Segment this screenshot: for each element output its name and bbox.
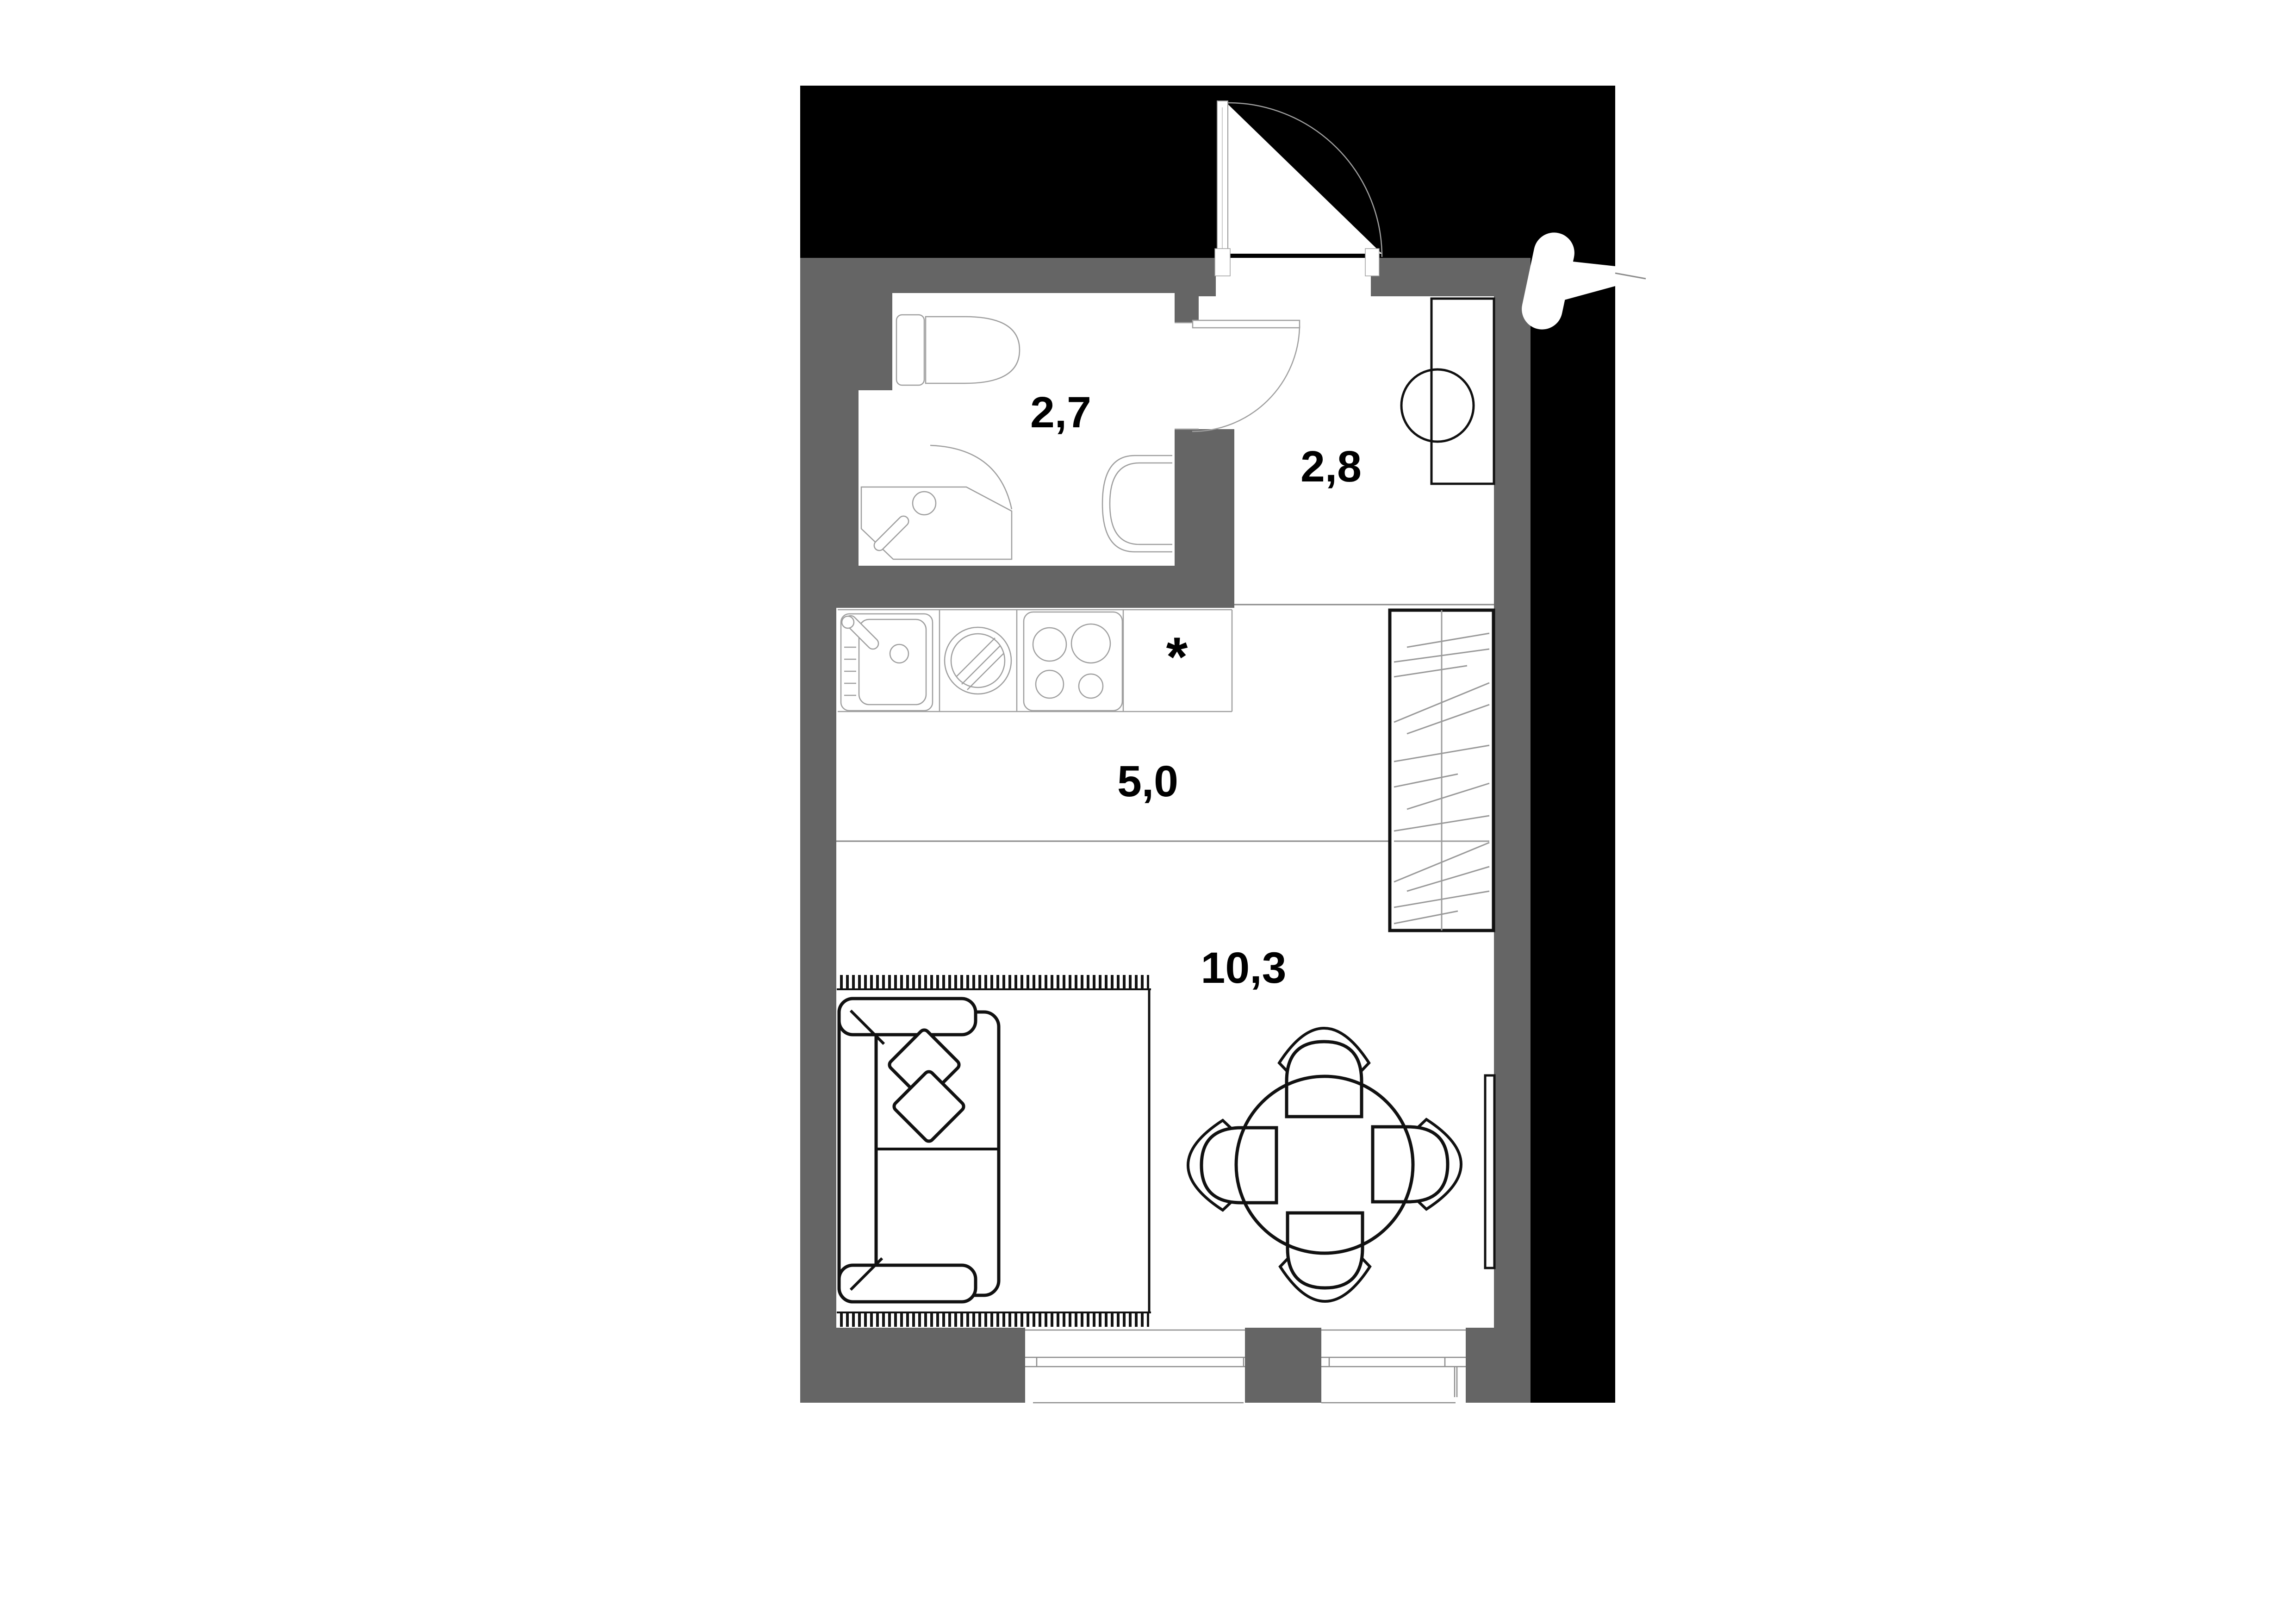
hallway-area-label: 2,8 <box>1300 442 1362 491</box>
toilet <box>896 315 1020 385</box>
entrance-door-jamb-right <box>1365 249 1379 276</box>
toilet-tank <box>896 315 924 385</box>
sink-faucet-knob <box>842 616 854 628</box>
kitchen-star-annotation: * <box>1166 626 1188 688</box>
window-2-opening <box>1321 1328 1466 1403</box>
kitchen-area-label: 5,0 <box>1117 757 1178 806</box>
entrance-door-jamb-left <box>1215 249 1230 276</box>
bathroom-area-label: 2,7 <box>1030 388 1091 437</box>
bathroom-doorway-cut <box>1175 323 1199 429</box>
floor-plan-canvas: 2,7 2,8 5,0 10,3 * <box>0 0 2296 1624</box>
sofa-arm-bottom <box>839 1265 976 1302</box>
tv <box>1485 1075 1494 1268</box>
wardrobe <box>1390 610 1493 931</box>
floor-plan-page: 2,7 2,8 5,0 10,3 * <box>0 0 2296 1624</box>
bathroom-door-leaf <box>1193 320 1300 328</box>
window-1-opening <box>1025 1328 1245 1403</box>
living-area-label: 10,3 <box>1201 943 1287 993</box>
sofa-arm-top <box>839 999 976 1035</box>
entrance-doorway-cut <box>1216 258 1371 296</box>
sofa <box>839 999 999 1302</box>
sofa-back <box>839 999 876 1302</box>
toilet-bowl <box>926 317 1020 383</box>
bathroom-floor-lower <box>859 390 1175 566</box>
